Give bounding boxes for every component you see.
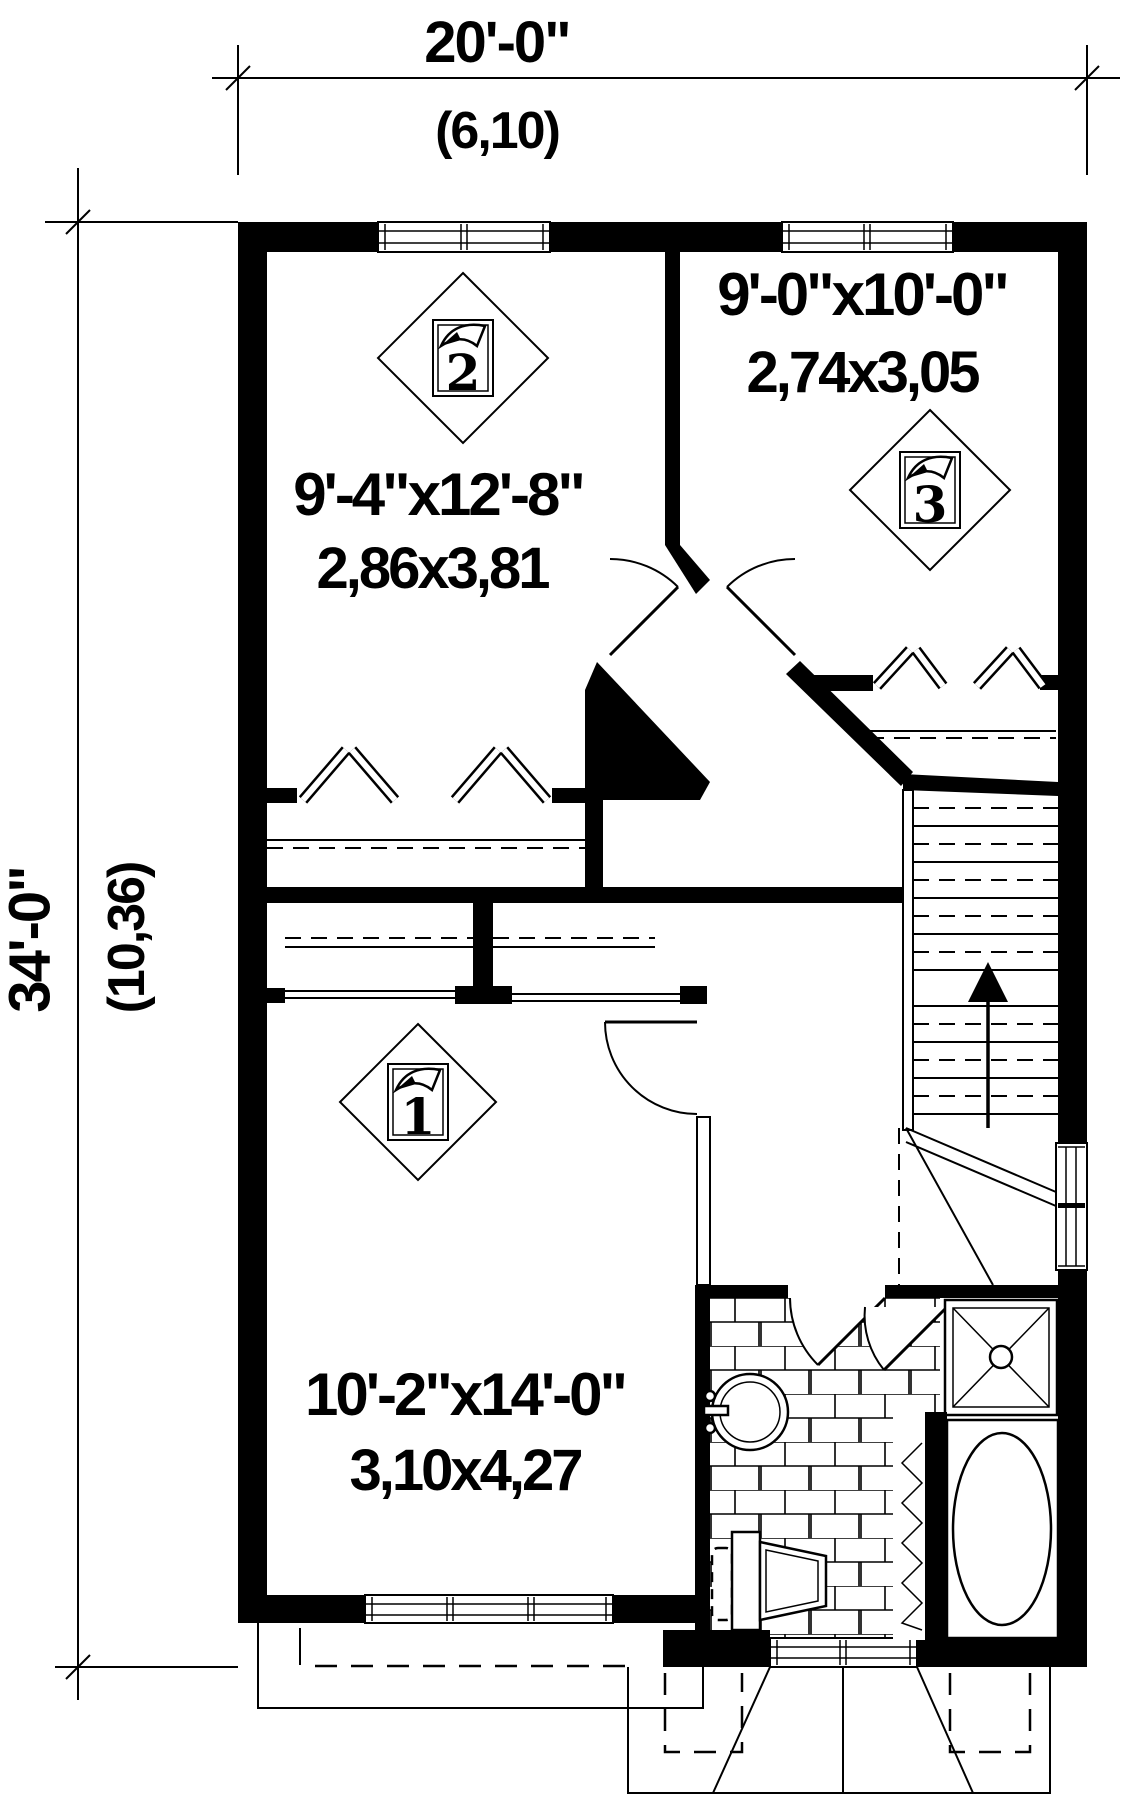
wall-bath-top-right	[885, 1285, 1087, 1298]
closet2-stub-left	[267, 788, 297, 803]
wall-tub	[925, 1412, 947, 1640]
sliding-door-center-post	[455, 986, 512, 1004]
room-marker-3-number: 3	[913, 475, 948, 534]
room-marker-3: 3	[850, 410, 1010, 570]
floor-plan-drawing: 20'-0" (6,10) 34'-0" (10,36)	[0, 0, 1135, 1800]
door-bedroom2	[610, 559, 678, 655]
window-bathroom	[770, 1638, 917, 1667]
wall-bedroom1-hall	[697, 1117, 710, 1285]
wall-mid	[267, 887, 907, 903]
shower-icon	[945, 1300, 1057, 1415]
wall-bedroom2-bedroom3	[665, 252, 680, 545]
dimension-top-metric: (6,10)	[435, 102, 559, 160]
dimension-top-imperial: 20'-0"	[424, 10, 569, 75]
room-label-bedroom1-metric: 3,10x4,27	[349, 1438, 581, 1503]
closet2-bifold-doors	[303, 750, 547, 800]
wall-bath-left	[695, 1285, 710, 1640]
room-marker-1-number: 1	[401, 1087, 436, 1146]
room-marker-1: 1	[340, 1024, 496, 1180]
room-marker-2-number: 2	[446, 343, 481, 402]
door-bedroom3	[727, 559, 795, 655]
room-label-bedroom2-metric: 2,86x3,81	[316, 536, 549, 601]
wall-stub-diagonal	[665, 545, 710, 594]
dimension-top: 20'-0" (6,10)	[212, 10, 1120, 175]
room-label-bedroom3-imperial: 9'-0"x10'-0"	[717, 261, 1007, 328]
room-label-bedroom2-imperial: 9'-4"x12'-8"	[293, 461, 583, 528]
room-label-bedroom3-metric: 2,74x3,05	[746, 340, 979, 405]
stair-cut-lines	[906, 1128, 1056, 1285]
closet3-bifold-doors	[877, 650, 1043, 686]
wall-bath-top-left	[710, 1285, 788, 1298]
stairs	[899, 774, 1058, 1285]
floor-plan-page: 20'-0" (6,10) 34'-0" (10,36)	[0, 0, 1135, 1800]
door-bedroom1	[605, 1022, 697, 1114]
closet2-stub-right	[552, 788, 585, 803]
bathroom	[704, 1298, 1058, 1640]
dimension-left: 34'-0" (10,36)	[0, 168, 238, 1700]
room-marker-2: 2	[378, 273, 548, 443]
dimension-left-imperial: 34'-0"	[0, 867, 63, 1012]
window-bedroom1	[365, 1595, 613, 1623]
closet3-stub-left	[807, 675, 873, 691]
window-bedroom3	[782, 222, 953, 252]
dimension-left-metric: (10,36)	[98, 863, 156, 1014]
stairs-up-arrow-icon	[968, 962, 1008, 1128]
room-label-bedroom1-imperial: 10'-2"x14'-0"	[305, 1361, 625, 1428]
wall-hall-diagonal-left	[585, 662, 710, 800]
window-stairwell	[1056, 1143, 1087, 1270]
window-bedroom2	[378, 222, 550, 252]
bathtub-icon	[947, 1420, 1058, 1638]
